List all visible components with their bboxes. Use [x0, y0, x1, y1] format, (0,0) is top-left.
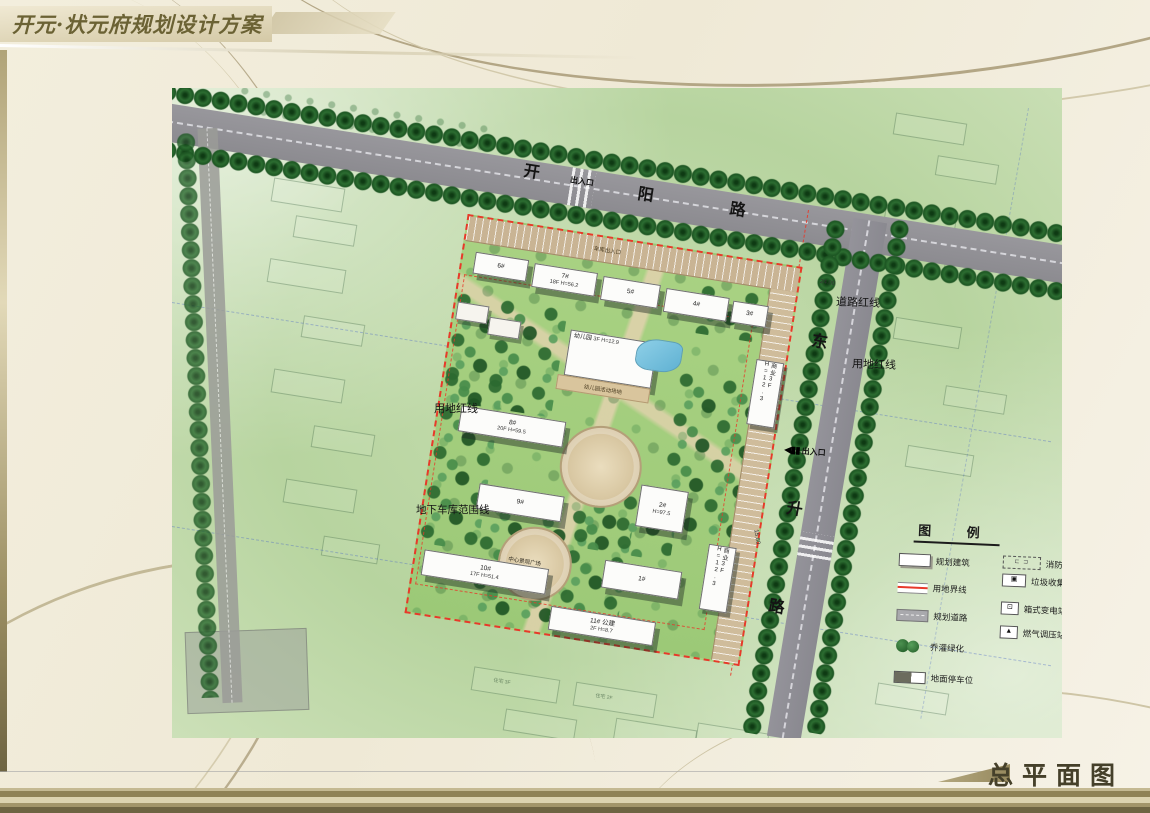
- gas-regulator-swatch: ▲: [999, 625, 1018, 639]
- fire-rescue-area-swatch: ⊏ ⊐: [1003, 555, 1042, 570]
- building-id: 1#: [637, 575, 645, 584]
- context-building-label: 住宅 2F: [595, 692, 613, 702]
- building-spec: 20F H=59.5: [497, 425, 527, 436]
- road-name-lu2: 路: [767, 592, 787, 618]
- master-plan-drawing: 住宅 3F 住宅 2F: [172, 88, 1062, 738]
- context-building: [293, 215, 358, 246]
- surface-parking-swatch: [893, 671, 925, 684]
- left-gold-bar: [0, 50, 7, 772]
- dimension-label: 24.00: [820, 279, 836, 287]
- kindergarten-label: 幼儿园 3F H=12.9: [573, 333, 619, 347]
- context-parking-lot: [185, 628, 310, 714]
- legend-item: ▣ 垃圾收集点: [1002, 573, 1062, 589]
- legend: 图 例 规划建筑 用地界线 规划道路 乔灌绿化 地面停车位: [900, 519, 1062, 552]
- commercial-block-north: 商业3F H=12.3: [746, 359, 784, 429]
- legend-label: 地面停车位: [930, 672, 973, 686]
- box-transformer-swatch: ⊡: [1001, 601, 1020, 615]
- building-spec: 3F H=12.9: [593, 336, 619, 346]
- building-id: 4#: [692, 301, 700, 310]
- legend-label: 消防扑救场地: [1046, 558, 1062, 572]
- building-id: 9#: [516, 498, 524, 507]
- planned-building-swatch: [899, 553, 932, 567]
- legend-label: 规划建筑: [936, 555, 971, 568]
- road-red-line-label: 道路红线: [836, 293, 881, 311]
- road-name-dong: 东: [810, 327, 830, 353]
- header-underline: [0, 44, 640, 59]
- building-id: 5#: [626, 288, 634, 297]
- context-building: [893, 113, 968, 146]
- building-id: 3#: [745, 310, 753, 319]
- building-spec: 17F H=51.4: [470, 570, 500, 581]
- legend-label: 垃圾收集点: [1031, 575, 1062, 589]
- legend-title: 图 例: [914, 520, 1001, 547]
- legend-item: 乔灌绿化: [895, 639, 965, 656]
- legend-item: ⊏ ⊐ 消防扑救场地: [1003, 555, 1062, 572]
- building-spec: H=97.5: [652, 508, 671, 517]
- drawing-title: 总平面图: [988, 756, 1124, 792]
- road-name-sheng: 升: [785, 494, 805, 520]
- tree-shrub-green-swatch: [895, 639, 926, 654]
- underground-garage-line-label: 地下车库范围线: [416, 502, 490, 517]
- context-building: [311, 425, 376, 456]
- land-red-line-left-label: 用地红线: [434, 400, 478, 416]
- planned-road-swatch: [896, 609, 928, 622]
- legend-label: 燃气调压站: [1022, 627, 1062, 641]
- legend-item: 规划道路: [896, 609, 967, 624]
- entrance-arrow-icon: ◀▮▮: [784, 445, 800, 457]
- road-west-context: [197, 128, 242, 703]
- land-red-line-right-label: 用地红线: [852, 355, 897, 373]
- building-id: 6#: [497, 263, 505, 272]
- legend-label: 规划道路: [933, 610, 968, 623]
- bottom-gold-bands: [0, 788, 1150, 813]
- road-centerline: [206, 128, 232, 702]
- commercial-label: 商业3F H=12.3: [754, 361, 776, 426]
- context-building: [271, 178, 346, 213]
- context-building: [875, 683, 950, 716]
- context-building: [283, 479, 358, 514]
- context-building-label: 住宅 3F: [493, 677, 511, 687]
- context-building: 住宅 3F: [471, 666, 561, 703]
- context-building: [695, 723, 770, 738]
- entrance-east-marker: ◀▮▮ 出入口: [784, 445, 826, 459]
- footer-rule: [0, 771, 1002, 772]
- legend-label: 箱式变电站: [1024, 603, 1062, 617]
- header-plate: 开元·状元府规划设计方案: [0, 6, 272, 42]
- context-building: [267, 258, 347, 294]
- context-building: [935, 155, 999, 184]
- legend-label: 乔灌绿化: [930, 641, 965, 654]
- header-wedge: [260, 12, 395, 34]
- context-building: [503, 709, 578, 738]
- context-building: [271, 369, 346, 404]
- legend-item: ▲ 燃气调压站: [999, 625, 1062, 641]
- page-title: 开元·状元府规划设计方案: [0, 9, 262, 39]
- crosswalk: [797, 531, 834, 560]
- garbage-collection-swatch: ▣: [1002, 573, 1027, 587]
- legend-item: ⊡ 箱式变电站: [1001, 601, 1062, 617]
- presentation-page: 开元·状元府规划设计方案 住宅 3F 住宅 2F: [0, 0, 1150, 813]
- legend-item: 规划建筑: [899, 553, 971, 569]
- building-spec: 18F H=56.2: [549, 278, 579, 289]
- context-building: [893, 317, 963, 349]
- site-parcel: 车库出入口 中心景观广场 6# 7# 18F H=56.2 5# 4# 3: [404, 214, 802, 666]
- commercial-label: 商业3F H=12.3: [707, 546, 729, 611]
- context-building: 住宅 2F: [573, 682, 658, 719]
- legend-item: 地面停车位: [893, 671, 973, 686]
- entrance-east-label: 出入口: [801, 446, 826, 459]
- building-2: 2# H=97.5: [635, 484, 689, 533]
- legend-item: 用地界线: [897, 581, 966, 596]
- context-building: [613, 718, 698, 738]
- gold-band: [0, 807, 1150, 813]
- legend-label: 用地界线: [932, 582, 967, 595]
- land-boundary-red-line-swatch: [897, 581, 927, 593]
- kindergarten-use: 幼儿园: [573, 333, 592, 342]
